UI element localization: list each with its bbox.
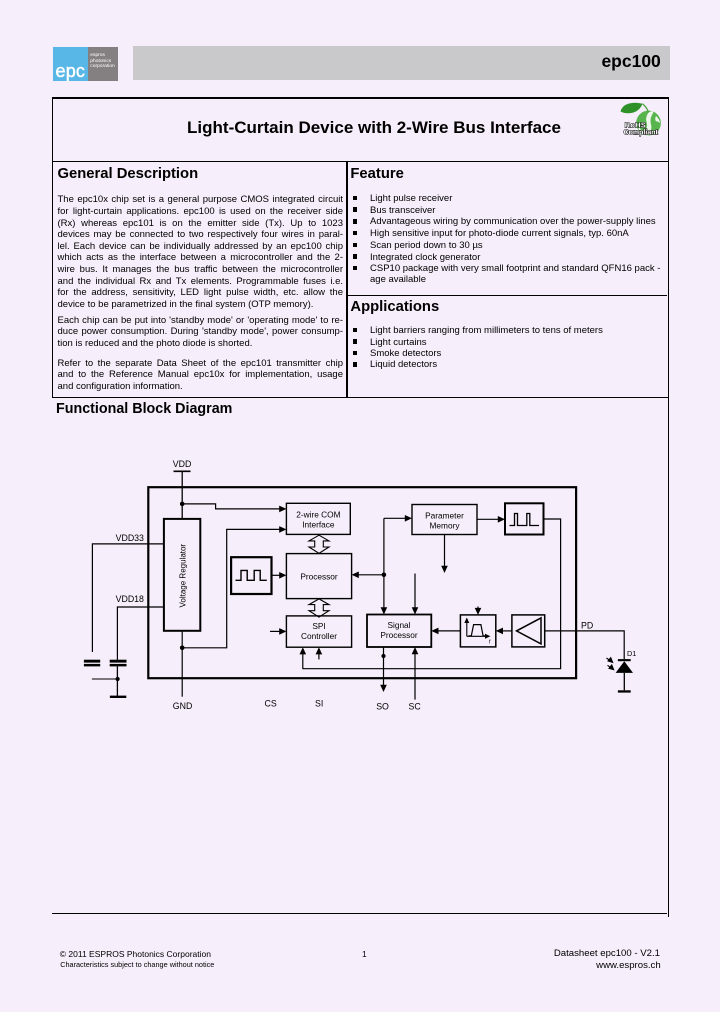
svg-text:D1: D1 bbox=[627, 649, 636, 658]
svg-text:Interface: Interface bbox=[302, 520, 335, 530]
svg-text:Processor: Processor bbox=[380, 630, 418, 640]
svg-text:Memory: Memory bbox=[430, 521, 461, 531]
svg-text:SI: SI bbox=[315, 698, 323, 708]
svg-text:2-wire COM: 2-wire COM bbox=[296, 510, 340, 520]
svg-text:Processor: Processor bbox=[300, 572, 338, 582]
svg-text:GND: GND bbox=[173, 701, 193, 711]
svg-text:Voltage Regulator: Voltage Regulator bbox=[179, 544, 188, 608]
svg-text:Signal: Signal bbox=[387, 620, 410, 630]
svg-text:VDD33: VDD33 bbox=[116, 533, 144, 543]
svg-text:PD: PD bbox=[581, 620, 593, 630]
svg-text:VDD: VDD bbox=[173, 459, 192, 469]
svg-text:Parameter: Parameter bbox=[425, 511, 464, 521]
svg-text:f: f bbox=[489, 640, 491, 646]
svg-text:SC: SC bbox=[409, 701, 422, 711]
svg-text:SO: SO bbox=[376, 701, 389, 711]
svg-text:SPI: SPI bbox=[312, 621, 325, 631]
svg-text:Controller: Controller bbox=[301, 631, 337, 641]
svg-text:CS: CS bbox=[265, 698, 277, 708]
svg-text:VDD18: VDD18 bbox=[116, 594, 144, 604]
